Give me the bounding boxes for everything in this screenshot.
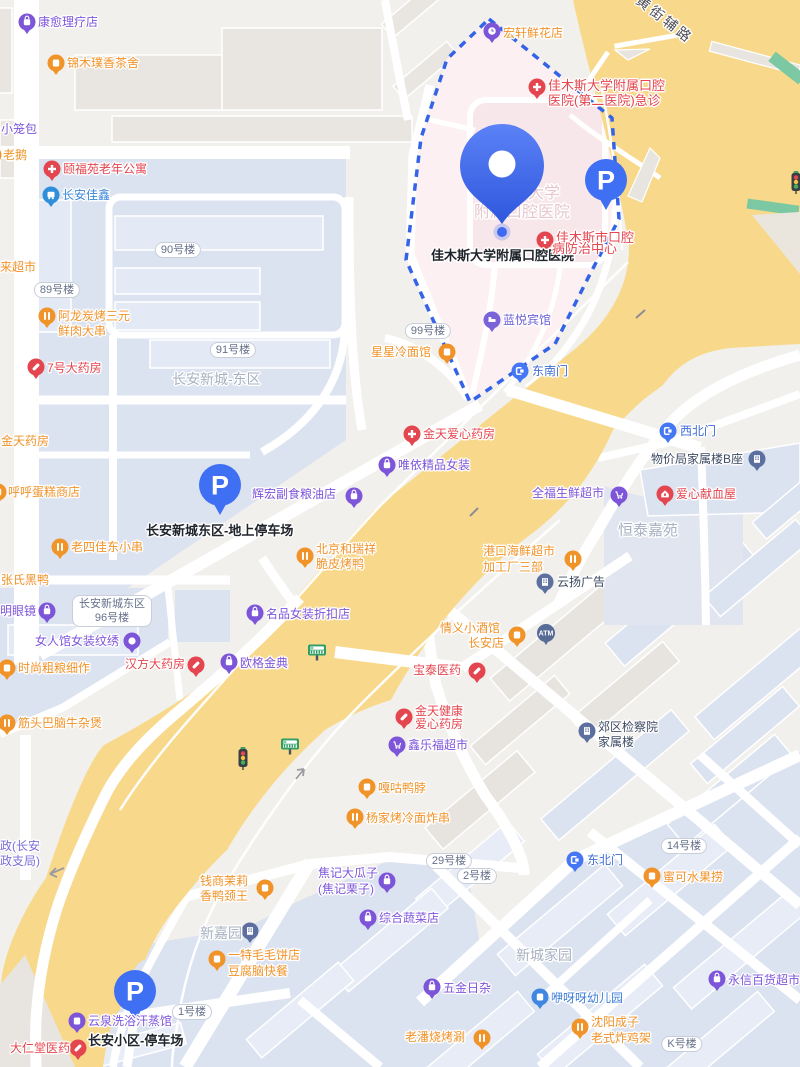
svg-text:P: P (126, 977, 144, 1007)
svg-text:P: P (211, 471, 229, 501)
svg-text:ATM: ATM (539, 631, 554, 638)
svg-text:P: P (597, 166, 615, 196)
